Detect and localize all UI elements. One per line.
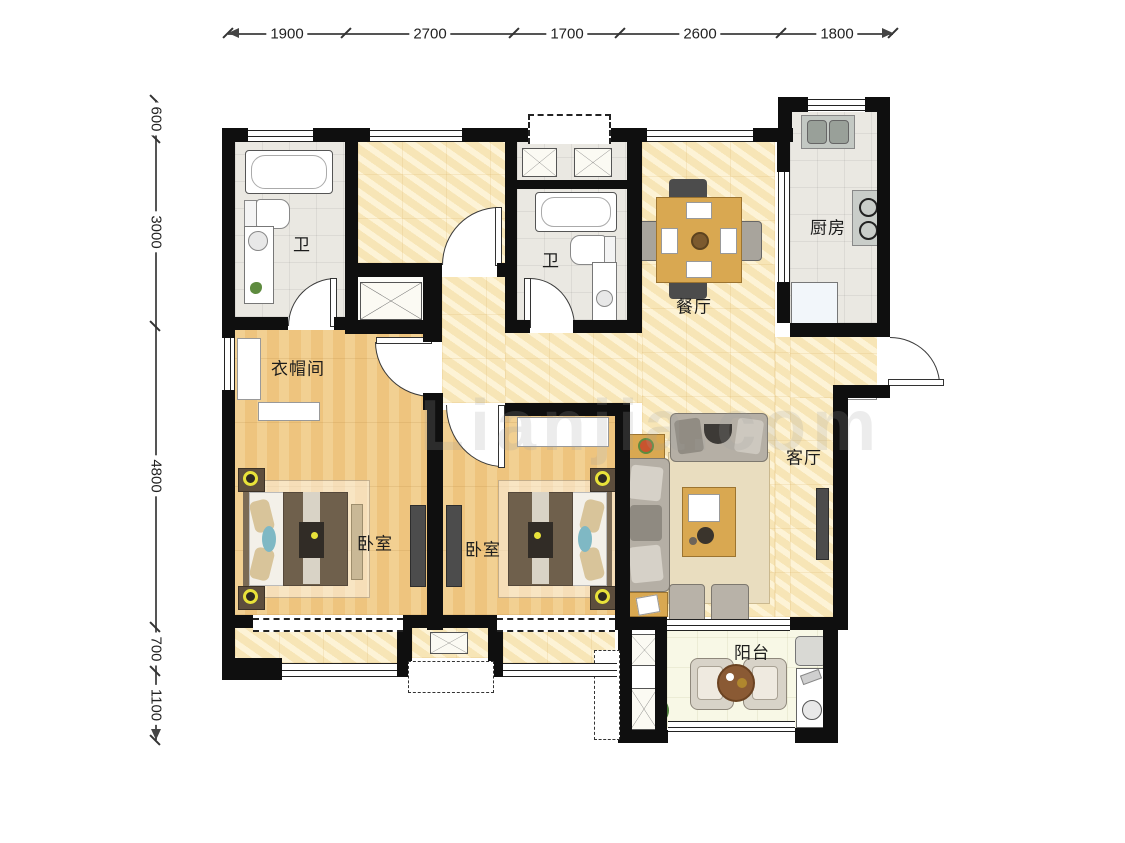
dim-top-1: 1900 xyxy=(266,26,307,43)
room-label-cloakroom: 衣帽间 xyxy=(271,355,325,380)
toilet2-tank xyxy=(604,236,616,264)
dim-top-5: 1800 xyxy=(816,26,857,43)
bay2-window xyxy=(503,663,617,677)
bed2-lamp-b xyxy=(595,589,610,604)
cloakroom-wardrobe xyxy=(237,338,261,400)
balcony-window xyxy=(668,721,795,732)
duct-shaft-bath2-a xyxy=(522,148,557,177)
kitchen-slider xyxy=(778,172,790,282)
ottoman-a xyxy=(669,584,705,624)
cloakroom-dresser xyxy=(258,402,320,421)
dining-window xyxy=(647,130,753,142)
duct-shaft-bay-mid xyxy=(430,632,468,654)
niche-above-bath2 xyxy=(528,114,611,144)
bed1-tray xyxy=(299,522,324,558)
toilet-bowl xyxy=(256,199,290,229)
bed2-lamp-a xyxy=(595,471,610,486)
sofa-left-cushion-a xyxy=(628,464,663,501)
balcony-table xyxy=(717,664,755,702)
room-label-living: 客厅 xyxy=(786,444,822,469)
room-label-kitchen: 厨房 xyxy=(810,214,846,239)
room-label-dining: 餐厅 xyxy=(676,293,712,318)
duct-shaft-balcony-b xyxy=(630,688,658,730)
kitchen-sink-basin-right xyxy=(829,120,849,144)
balcony-chair-b-cushion xyxy=(752,666,778,700)
bed2-cushion xyxy=(578,526,592,552)
bed1-cushion xyxy=(262,526,276,552)
coffee-table-tray xyxy=(688,494,720,522)
entry-strip-floor xyxy=(775,337,790,617)
bath1-window xyxy=(248,130,313,142)
bay-mid-ledge xyxy=(408,661,494,693)
bedroom2-tv-dresser xyxy=(446,505,462,587)
room-label-balcony: 阳台 xyxy=(734,639,770,664)
bed1-lamp-b xyxy=(243,589,258,604)
room-label-bath2: 卫 xyxy=(542,247,560,272)
dim-top-4: 2600 xyxy=(679,26,720,43)
duct-shaft-bath2-b xyxy=(574,148,612,177)
stove-burner-1 xyxy=(859,198,878,217)
suite-door xyxy=(495,207,502,266)
entry-door xyxy=(888,379,944,386)
dining-chair-east xyxy=(739,221,762,261)
place-setting-w xyxy=(661,228,678,254)
bay2-opening xyxy=(497,618,615,632)
sofa-left-cushion-c xyxy=(628,544,664,583)
room-label-bedroom2: 卧室 xyxy=(465,536,501,561)
bay1-opening xyxy=(253,618,403,632)
balcony-table-cup-b xyxy=(737,678,747,688)
bed1-tray-lamp xyxy=(311,532,318,539)
dim-left-3: 4800 xyxy=(148,455,165,496)
place-setting-e xyxy=(720,228,737,254)
dining-centerpiece xyxy=(691,232,709,250)
coffee-table-kettle xyxy=(697,527,714,544)
place-setting-s xyxy=(686,261,712,278)
balcony-table-cup-a xyxy=(726,673,734,681)
side-table-b-book xyxy=(636,594,661,616)
balcony-washer-drum xyxy=(802,700,822,720)
dim-left-5: 1100 xyxy=(148,685,165,725)
sofa-left-cushion-b xyxy=(630,505,662,541)
duct-shaft-corridor xyxy=(360,282,422,320)
kitchen-window xyxy=(808,99,865,111)
dim-top-3: 1700 xyxy=(546,26,587,43)
dim-left-2: 3000 xyxy=(148,211,165,252)
room-label-bedroom1: 卧室 xyxy=(357,530,393,555)
corridor-window xyxy=(370,130,462,142)
room-label-bath1: 卫 xyxy=(293,231,311,256)
fridge xyxy=(791,282,838,325)
bed1-lamp-a xyxy=(243,471,258,486)
bathtub-inner xyxy=(251,155,327,189)
bed2-tray xyxy=(528,522,553,558)
floor-plan: 卫 卫 厨房 餐厅 衣帽间 卧室 卧室 客厅 阳台 Lianjia.com 19… xyxy=(0,0,1125,843)
living-tv-cabinet xyxy=(816,488,829,560)
bathtub2-inner xyxy=(541,197,611,227)
ottoman-b xyxy=(711,584,749,624)
kitchen-sink-basin-left xyxy=(807,120,827,144)
bedroom1-tv-dresser xyxy=(410,505,426,587)
bed2-tray-lamp xyxy=(534,532,541,539)
bay1-window xyxy=(282,663,397,677)
balcony-slider xyxy=(667,619,790,631)
dim-left-1: 600 xyxy=(148,102,165,135)
toilet2-bowl xyxy=(570,235,606,265)
dim-left-4: 700 xyxy=(148,632,165,665)
vanity2-sink xyxy=(596,290,613,307)
vanity-sink xyxy=(248,231,268,251)
coffee-table-cup xyxy=(689,537,697,545)
place-setting-n xyxy=(686,202,712,219)
stove-burner-2 xyxy=(859,221,878,240)
cloakroom-window xyxy=(224,338,235,390)
dim-top-2: 2700 xyxy=(409,26,450,43)
entry-door-swing xyxy=(890,337,940,385)
